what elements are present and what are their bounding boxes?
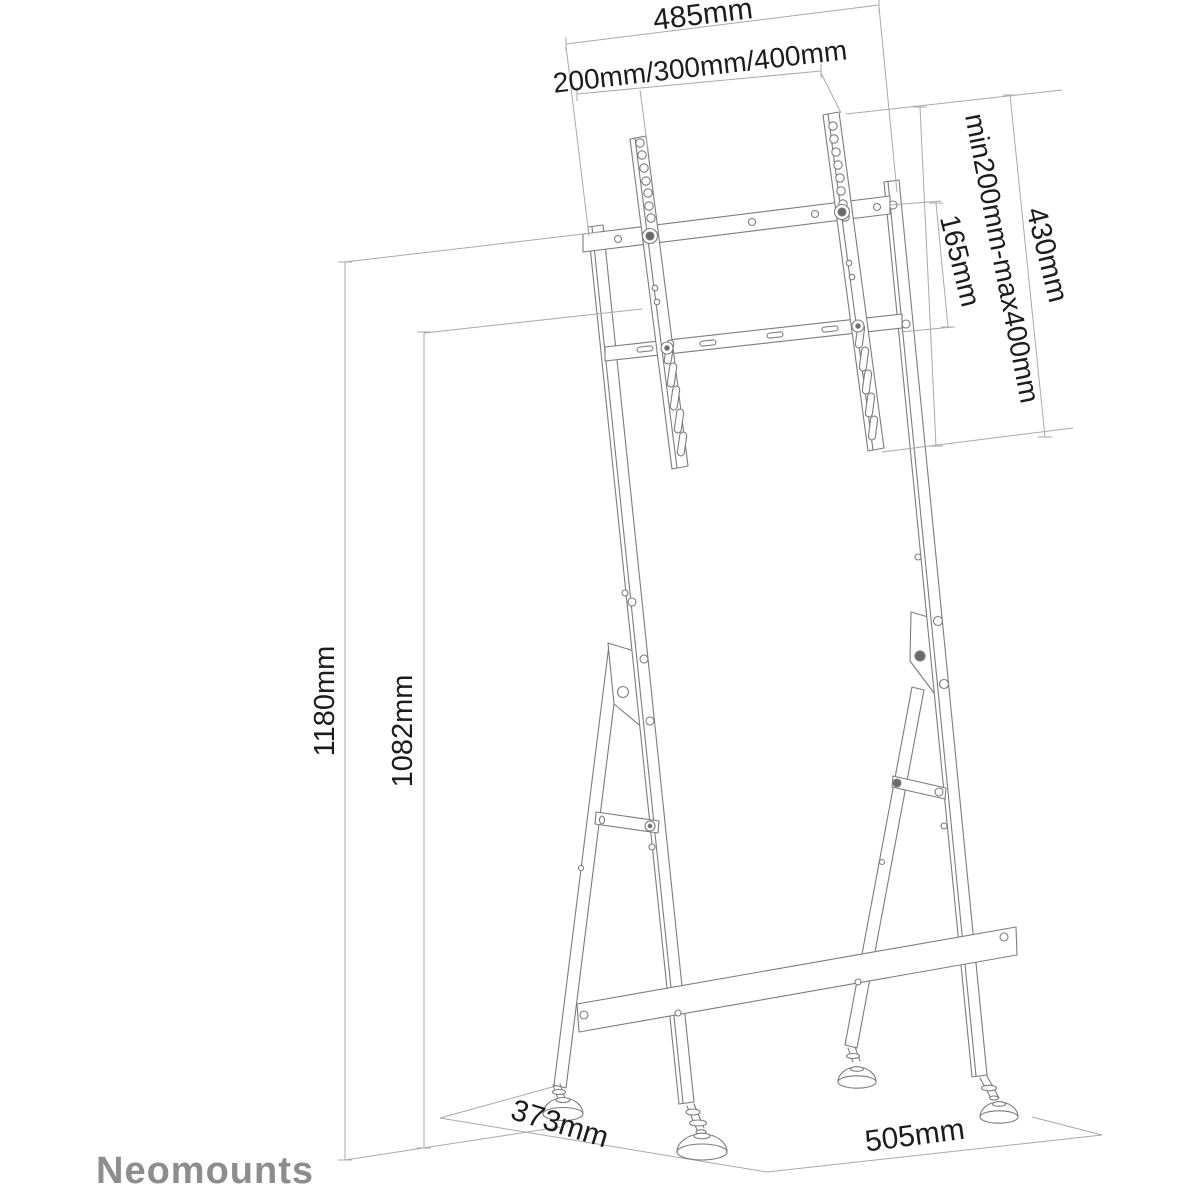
rail-pin bbox=[846, 260, 852, 266]
stretcher-bolt bbox=[855, 979, 861, 985]
stretcher-bolt bbox=[580, 1011, 588, 1019]
rail-hole bbox=[830, 135, 838, 143]
leg-bolt bbox=[934, 617, 943, 626]
rail-hole bbox=[638, 151, 646, 159]
diagram-canvas: 485mm 200mm/300mm/400mm min200mm-max400m… bbox=[0, 0, 1200, 1200]
crossbar-hole bbox=[874, 204, 881, 211]
right-vesa-rail bbox=[823, 112, 884, 451]
rail-pin bbox=[654, 299, 660, 305]
leg-tab bbox=[622, 590, 628, 596]
brace-bolt-center bbox=[648, 824, 652, 828]
stand-diagram: 485mm 200mm/300mm/400mm min200mm-max400m… bbox=[0, 0, 1200, 1200]
foot-front-left bbox=[677, 1104, 727, 1160]
dim-label-top-width: 485mm bbox=[651, 0, 754, 37]
dim-label-overall-height: 1180mm bbox=[309, 646, 341, 757]
leg-bolt bbox=[640, 655, 648, 663]
dim-label-bracket-height: 430mm bbox=[1020, 204, 1074, 306]
rail-hole bbox=[832, 148, 840, 156]
foot-front-right bbox=[980, 1076, 1018, 1123]
front-stretcher-bar bbox=[577, 927, 1017, 1032]
crossbar-hole bbox=[812, 211, 819, 218]
rail-hole bbox=[645, 202, 653, 210]
dim-label-vesa-width: 200mm/300mm/400mm bbox=[551, 34, 848, 98]
rail-hole bbox=[644, 189, 652, 197]
crossbar-hole bbox=[749, 219, 756, 226]
rail-hole bbox=[829, 122, 837, 130]
stretcher-bolt bbox=[1000, 933, 1008, 941]
leg-bolt bbox=[628, 598, 636, 606]
crossbar-slot bbox=[822, 326, 838, 333]
rail-hole bbox=[640, 164, 648, 172]
crossbar-slot bbox=[637, 346, 653, 353]
brace-bolt bbox=[935, 788, 943, 796]
leg-bolt bbox=[940, 680, 949, 689]
rail-hole bbox=[647, 214, 655, 222]
leg-bolt bbox=[646, 717, 654, 725]
rear-right-leg-clip bbox=[880, 860, 885, 865]
left-hinge-hole bbox=[618, 687, 629, 698]
rail-pin bbox=[652, 285, 658, 291]
crossbar-slot bbox=[767, 332, 783, 339]
rail-hole bbox=[642, 177, 650, 185]
brand-logo: Neomounts bbox=[96, 1150, 314, 1192]
leg-bolt bbox=[902, 320, 910, 328]
rail-pin bbox=[849, 274, 855, 280]
crossbar-hole bbox=[615, 236, 622, 243]
leg-tab bbox=[941, 823, 947, 829]
dim-label-frame-height: 1082mm bbox=[387, 675, 419, 788]
right-hinge-bolt bbox=[915, 651, 925, 661]
brace-bolt bbox=[893, 779, 901, 787]
foot-rear-right bbox=[838, 1047, 876, 1088]
leg-tab bbox=[649, 844, 655, 850]
rear-left-leg-clip bbox=[579, 866, 584, 871]
leg-tab bbox=[915, 554, 921, 560]
rear-right-leg bbox=[845, 687, 924, 1048]
rail-hole bbox=[636, 139, 644, 147]
crossbar-slot bbox=[700, 340, 716, 347]
brace-slot bbox=[600, 816, 605, 824]
rail-hole bbox=[837, 187, 845, 195]
rail-hole bbox=[836, 174, 844, 182]
stretcher-bolt bbox=[675, 1010, 681, 1016]
rail-hole bbox=[834, 161, 842, 169]
